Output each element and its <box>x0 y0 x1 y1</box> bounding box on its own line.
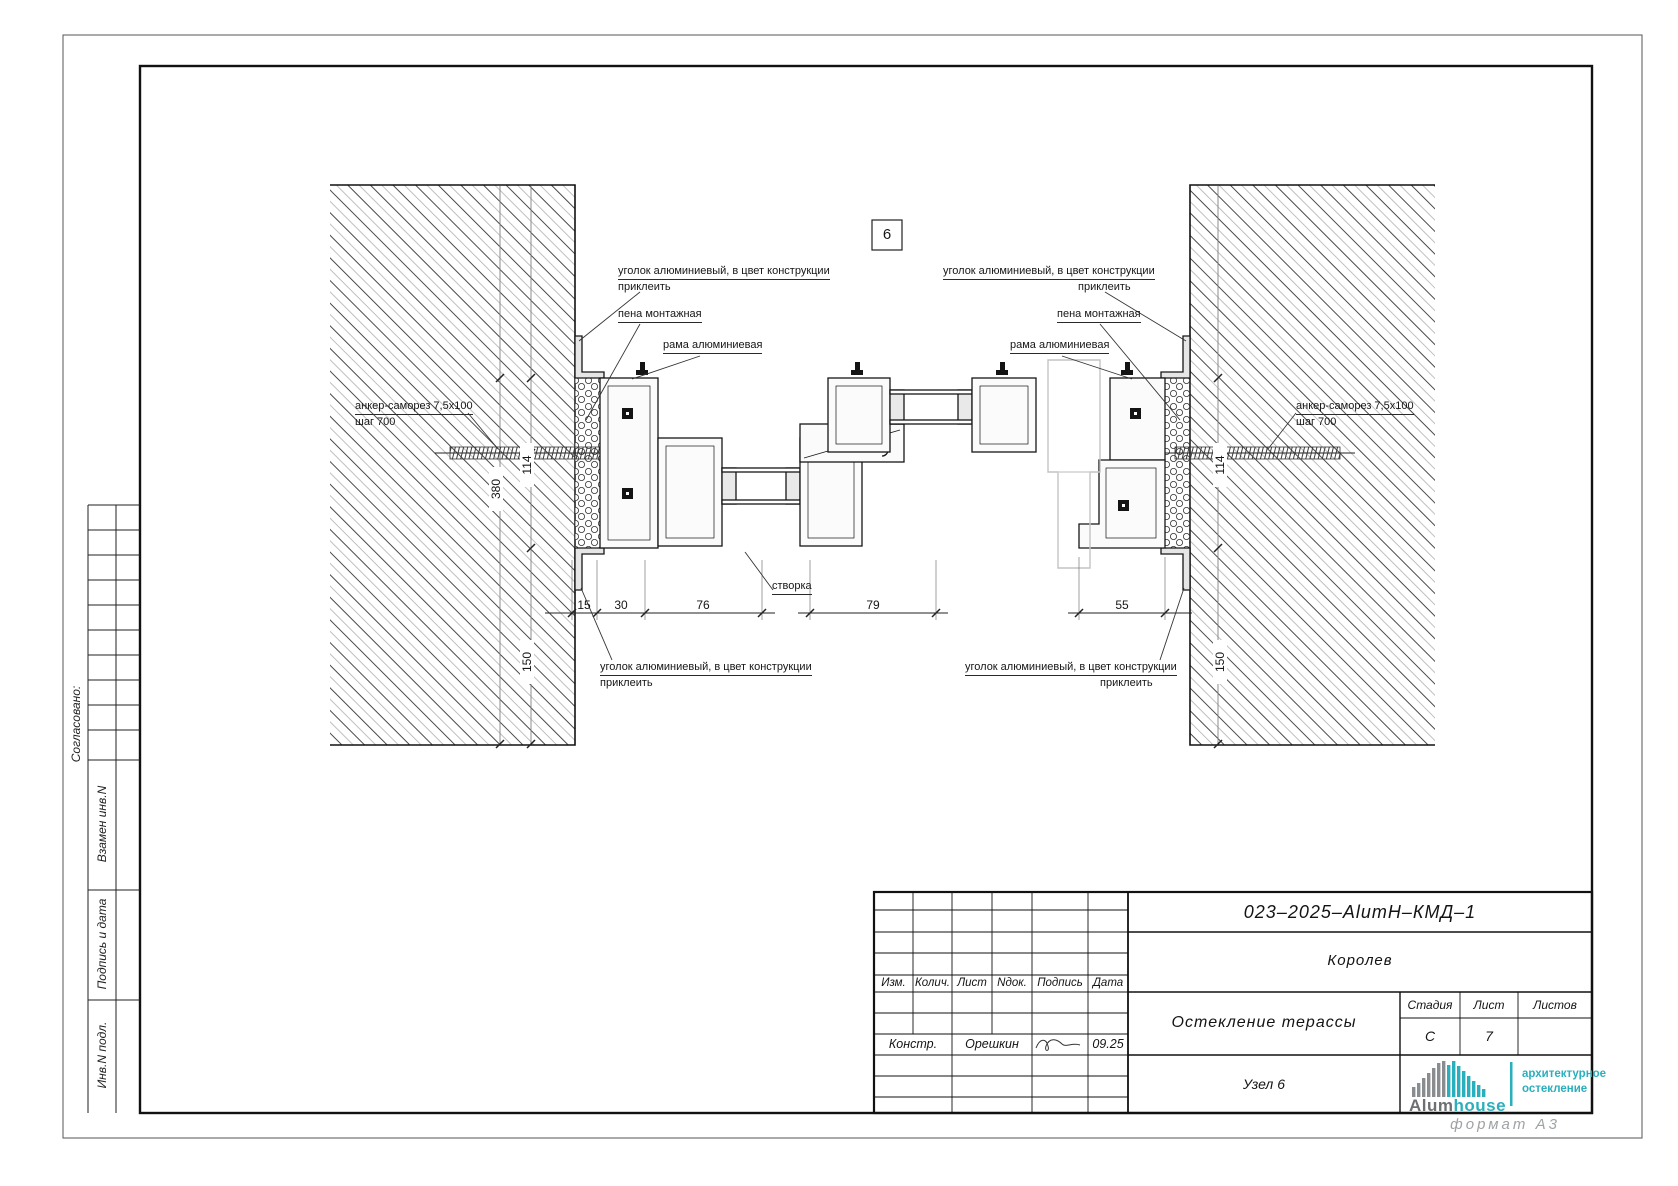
stamp-replace-inv: Взамен инв.N <box>95 764 109 884</box>
col-podpis: Подпись <box>1032 977 1088 989</box>
label-anchor-step-right: шаг 700 <box>1296 416 1336 429</box>
dim-76: 76 <box>688 598 718 612</box>
stamp-inv-orig: Инв.N подл. <box>95 995 109 1115</box>
sign-date-value: 09.25 <box>1088 1037 1128 1051</box>
dim-79: 79 <box>858 598 888 612</box>
signature-scribble <box>1036 1040 1080 1051</box>
label-sash: створка <box>772 580 812 595</box>
dim-114-left: 114 <box>520 443 534 487</box>
designer-name: Орешкин <box>952 1037 1032 1051</box>
brand-teal-part: house <box>1454 1096 1507 1115</box>
label-foam-left: пена монтажная <box>618 308 702 323</box>
sheet-value: 7 <box>1460 1028 1518 1044</box>
label-glue-bottom-right: приклеить <box>1100 677 1153 690</box>
role-constr: Констр. <box>874 1037 952 1051</box>
label-corner-angle-bottom-right: уголок алюминиевый, в цвет конструкции <box>965 661 1177 676</box>
dim-380: 380 <box>489 467 503 511</box>
col-list: Лист <box>952 977 992 989</box>
node-callout-number: 6 <box>872 226 902 243</box>
label-corner-angle-right: уголок алюминиевый, в цвет конструкции <box>943 265 1155 280</box>
dim-15: 15 <box>572 598 596 612</box>
drawing-sheet: { "drawing": { "callout": "6", "labels":… <box>0 0 1678 1186</box>
brand-gray-part: Alum <box>1409 1096 1454 1115</box>
stage-value: С <box>1400 1028 1460 1044</box>
sheet-label: Лист <box>1460 998 1518 1012</box>
node-title: Узел 6 <box>1128 1076 1400 1092</box>
col-data: Дата <box>1088 977 1128 989</box>
label-anchor-right: анкер-саморез 7,5х100 <box>1296 400 1414 415</box>
label-glue-right: приклеить <box>1078 281 1131 294</box>
label-corner-angle-bottom-left: уголок алюминиевый, в цвет конструкции <box>600 661 812 676</box>
logo-tagline-1: архитектурное <box>1522 1068 1606 1080</box>
label-anchor-step-left: шаг 700 <box>355 416 395 429</box>
label-anchor-left: анкер-саморез 7,5х100 <box>355 400 473 415</box>
left-wall <box>330 185 575 745</box>
logo-tagline-2: остекление <box>1522 1083 1587 1095</box>
alumhouse-wordmark: Alumhouse <box>1409 1096 1506 1116</box>
stage-label: Стадия <box>1400 998 1460 1012</box>
label-frame-right: рама алюминиевая <box>1010 339 1109 354</box>
sheet-title: Остекление терассы <box>1128 1014 1400 1032</box>
dim-114-right: 114 <box>1213 443 1227 487</box>
dim-150-left: 150 <box>520 640 534 684</box>
doc-code: 023–2025–AlumH–КМД–1 <box>1128 902 1592 923</box>
dim-150-right: 150 <box>1213 640 1227 684</box>
stamp-sign-date: Подпись и дата <box>95 879 109 1009</box>
project-name: Королев <box>1128 952 1592 969</box>
label-foam-right: пена монтажная <box>1057 308 1141 323</box>
stamp-agreed: Согласовано: <box>69 642 83 806</box>
col-kolich: Колич. <box>913 977 952 989</box>
label-frame-left: рама алюминиевая <box>663 339 762 354</box>
label-glue-left: приклеить <box>618 281 671 294</box>
label-corner-angle-left: уголок алюминиевый, в цвет конструкции <box>618 265 830 280</box>
sheets-label: Листов <box>1518 998 1592 1012</box>
label-glue-bottom-left: приклеить <box>600 677 653 690</box>
aluminium-profiles <box>575 336 1190 590</box>
dim-55: 55 <box>1107 598 1137 612</box>
format-note: формат А3 <box>1440 1116 1570 1133</box>
col-izm: Изм. <box>874 977 913 989</box>
col-ndok: Nдок. <box>992 977 1032 989</box>
dim-30: 30 <box>606 598 636 612</box>
